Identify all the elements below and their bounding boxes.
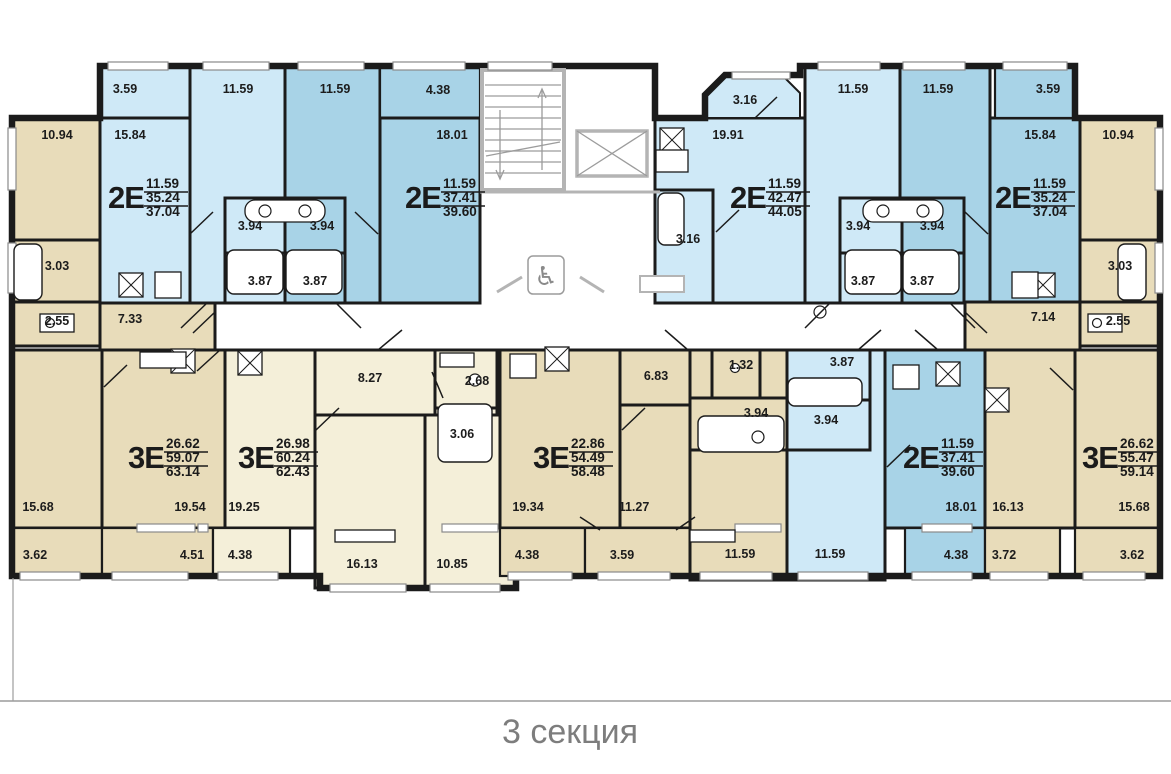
floor-plan-page: ♿3.5911.5911.594.383.1611.5911.593.5910.… xyxy=(0,0,1171,774)
window xyxy=(488,62,552,70)
window xyxy=(1003,62,1067,70)
apartment-type-label: 2Е xyxy=(903,440,939,475)
apartment-type-label: 3Е xyxy=(128,440,164,475)
window xyxy=(430,584,500,592)
bathtub-icon xyxy=(14,244,42,300)
room-area-label: 15.84 xyxy=(1024,128,1055,142)
room xyxy=(500,528,585,576)
room-area-label: 3.59 xyxy=(113,82,137,96)
bathtub-icon xyxy=(788,378,862,406)
apartment-area-value: 11.59 xyxy=(768,176,801,191)
room-area-label: 3.16 xyxy=(676,232,700,246)
window xyxy=(818,62,880,70)
room-area-label: 4.38 xyxy=(426,83,450,97)
room-area-label: 19.25 xyxy=(228,500,259,514)
room-area-label: 3.94 xyxy=(744,406,768,420)
room-area-label: 7.33 xyxy=(118,312,142,326)
apartment-area-value: 11.59 xyxy=(1033,176,1066,191)
window xyxy=(735,524,781,532)
room-area-label: 16.13 xyxy=(346,557,377,571)
sink-icon xyxy=(917,205,929,217)
room-area-label: 4.38 xyxy=(228,548,252,562)
sink-icon xyxy=(752,431,764,443)
room-area-label: 15.68 xyxy=(22,500,53,514)
room-area-label: 3.06 xyxy=(450,427,474,441)
apartment-area-value: 11.59 xyxy=(941,436,974,451)
apartment-type-label: 2Е xyxy=(108,180,144,215)
floor-plan: ♿3.5911.5911.594.383.1611.5911.593.5910.… xyxy=(0,0,1171,774)
room-area-label: 11.59 xyxy=(923,82,954,96)
room-area-label: 15.84 xyxy=(114,128,145,142)
sink-icon xyxy=(259,205,271,217)
window xyxy=(732,72,790,79)
room-area-label: 11.59 xyxy=(838,82,869,96)
toilet-icon xyxy=(1093,319,1102,328)
window xyxy=(393,62,465,70)
window xyxy=(1155,128,1163,190)
window xyxy=(8,128,16,190)
apartment-type-label: 2Е xyxy=(405,180,441,215)
fixture-box xyxy=(440,353,474,367)
room-area-label: 19.91 xyxy=(712,128,743,142)
room-area-label: 19.34 xyxy=(512,500,543,514)
room-area-label: 11.59 xyxy=(815,547,846,561)
room-area-label: 4.38 xyxy=(515,548,539,562)
room-area-label: 3.62 xyxy=(23,548,47,562)
room xyxy=(1075,528,1160,576)
window xyxy=(598,572,670,580)
room-area-label: 2.55 xyxy=(1106,314,1130,328)
apartment-area-value: 26.62 xyxy=(1120,436,1154,451)
room-area-label: 3.87 xyxy=(851,274,875,288)
window xyxy=(700,572,772,580)
apartment-type-label: 2Е xyxy=(995,180,1031,215)
room-area-label: 3.16 xyxy=(733,93,757,107)
apartment-type-label: 3Е xyxy=(238,440,274,475)
fixture-box xyxy=(140,352,186,368)
room-area-label: 15.68 xyxy=(1118,500,1149,514)
fixture-box xyxy=(656,150,688,172)
window xyxy=(912,572,972,580)
room-area-label: 3.87 xyxy=(910,274,934,288)
room-area-label: 10.94 xyxy=(1102,128,1133,142)
apartment-area-value: 26.98 xyxy=(276,436,310,451)
fixture-box xyxy=(155,272,181,298)
lobby-sill xyxy=(640,276,684,292)
room-area-label: 4.51 xyxy=(180,548,204,562)
room-area-label: 4.38 xyxy=(944,548,968,562)
room xyxy=(102,350,225,528)
fixture-box xyxy=(510,354,536,378)
room-area-label: 3.87 xyxy=(830,355,854,369)
window xyxy=(1155,243,1163,293)
section-title: 3 секция xyxy=(502,713,638,751)
room-area-label: 19.54 xyxy=(174,500,205,514)
apartment-area-value: 11.59 xyxy=(443,176,476,191)
wheelchair-icon: ♿ xyxy=(534,261,557,291)
window xyxy=(137,524,195,532)
apartment-type-label: 3Е xyxy=(533,440,569,475)
window xyxy=(198,524,208,532)
room-area-label: 3.72 xyxy=(992,548,1016,562)
room-area-label: 3.94 xyxy=(814,413,838,427)
room-area-label: 3.94 xyxy=(310,219,334,233)
apartment-type-label: 3Е xyxy=(1082,440,1118,475)
fixture-box xyxy=(1012,272,1038,298)
fixture-box xyxy=(335,530,395,542)
sink-icon xyxy=(877,205,889,217)
plan-drawing: ♿3.5911.5911.594.383.1611.5911.593.5910.… xyxy=(0,62,1171,701)
fixture-box xyxy=(893,365,919,389)
room-area-label: 10.85 xyxy=(436,557,467,571)
room-area-label: 11.59 xyxy=(320,82,351,96)
window xyxy=(903,62,965,70)
room-area-label: 3.03 xyxy=(1108,259,1132,273)
room-area-label: 3.87 xyxy=(248,274,272,288)
window xyxy=(442,524,498,532)
room-area-label: 3.94 xyxy=(238,219,262,233)
window xyxy=(203,62,269,70)
room xyxy=(965,302,1080,350)
window xyxy=(922,524,972,532)
stairwell xyxy=(482,70,564,190)
room-area-label: 7.14 xyxy=(1031,310,1055,324)
window xyxy=(112,572,188,580)
room-area-label: 10.94 xyxy=(41,128,72,142)
room-area-label: 6.83 xyxy=(644,369,668,383)
room-area-label: 11.59 xyxy=(223,82,254,96)
window xyxy=(330,584,406,592)
room-area-label: 1.32 xyxy=(729,358,753,372)
window xyxy=(990,572,1048,580)
room-area-label: 3.62 xyxy=(1120,548,1144,562)
room xyxy=(100,302,215,350)
bathtub-icon xyxy=(698,416,784,452)
room-area-label: 16.13 xyxy=(992,500,1023,514)
fixture-box xyxy=(690,530,735,542)
room-area-label: 2.68 xyxy=(465,374,489,388)
room-area-label: 18.01 xyxy=(436,128,467,142)
apartment-area-value: 22.86 xyxy=(571,436,605,451)
room-area-label: 18.01 xyxy=(945,500,976,514)
room-area-label: 3.87 xyxy=(303,274,327,288)
room-area-label: 3.59 xyxy=(1036,82,1060,96)
room xyxy=(215,303,985,350)
room-area-label: 2.55 xyxy=(45,314,69,328)
apartment-area-value: 11.59 xyxy=(146,176,179,191)
window xyxy=(1083,572,1145,580)
window xyxy=(20,572,80,580)
apartment-area-value: 26.62 xyxy=(166,436,200,451)
room xyxy=(585,528,690,576)
room-area-label: 3.94 xyxy=(846,219,870,233)
window xyxy=(108,62,168,70)
room-area-label: 11.27 xyxy=(619,500,650,514)
window xyxy=(508,572,572,580)
sink-icon xyxy=(299,205,311,217)
room-area-label: 3.59 xyxy=(610,548,634,562)
apartment-type-label: 2Е xyxy=(730,180,766,215)
window xyxy=(218,572,278,580)
room-area-label: 8.27 xyxy=(358,371,382,385)
window xyxy=(798,572,868,580)
room-area-label: 11.59 xyxy=(725,547,756,561)
room-area-label: 3.03 xyxy=(45,259,69,273)
room-area-label: 3.94 xyxy=(920,219,944,233)
window xyxy=(298,62,364,70)
